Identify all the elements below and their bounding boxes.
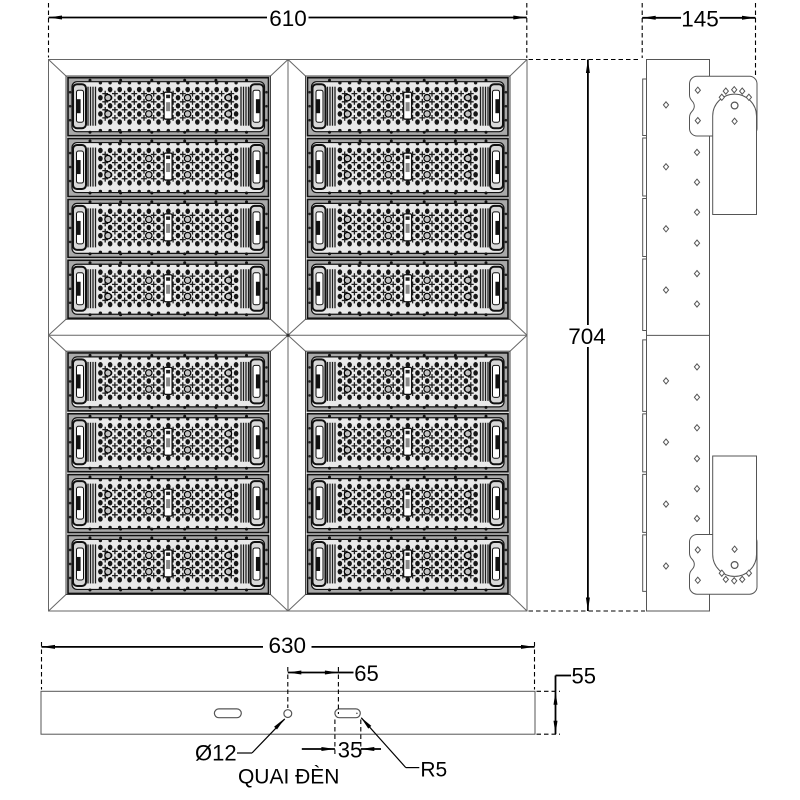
svg-text:610: 610 bbox=[269, 6, 307, 31]
svg-text:630: 630 bbox=[269, 633, 307, 658]
svg-text:35: 35 bbox=[338, 738, 362, 763]
svg-text:55: 55 bbox=[572, 664, 596, 689]
svg-text:R5: R5 bbox=[420, 759, 447, 782]
svg-text:Ø12: Ø12 bbox=[195, 740, 237, 765]
svg-text:QUAI ĐÈN: QUAI ĐÈN bbox=[238, 766, 340, 789]
svg-text:704: 704 bbox=[568, 324, 606, 349]
svg-text:65: 65 bbox=[354, 661, 378, 686]
svg-text:145: 145 bbox=[681, 6, 719, 31]
